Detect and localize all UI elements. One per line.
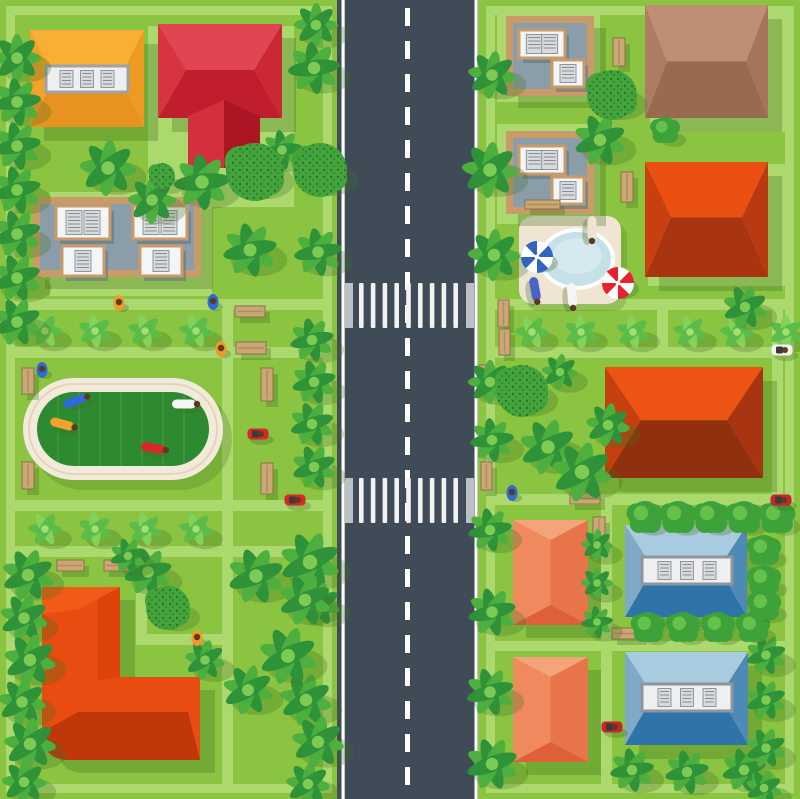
crosswalk-stripe: [394, 283, 399, 328]
crosswalk-stripe: [406, 478, 411, 523]
crosswalk-stripe: [430, 283, 435, 328]
lounger-body: [588, 216, 597, 240]
walk-path: [222, 299, 233, 791]
umbrella-pole-tip: [535, 255, 540, 260]
crosswalk-stripe: [371, 478, 376, 523]
hip-roof-house: [30, 30, 158, 141]
roof-skylight-strip: [642, 557, 732, 584]
crosswalk-stripe: [453, 283, 458, 328]
hip-roof-house: [625, 652, 762, 759]
person-head: [210, 298, 216, 304]
driver-head: [258, 431, 264, 437]
walk-path: [10, 500, 323, 511]
crosswalk-stripe: [359, 283, 364, 328]
crosswalk-stripe: [430, 478, 435, 523]
person-head: [116, 299, 122, 305]
road-edge-line: [475, 0, 478, 799]
roof-facet: [98, 587, 120, 680]
person-head: [39, 366, 45, 372]
skylight-panel: [56, 206, 110, 239]
crosswalk-stripe: [383, 283, 388, 328]
bench: [525, 200, 565, 215]
walk-path: [486, 641, 602, 651]
sunbather-head: [194, 401, 200, 407]
road: [337, 0, 478, 799]
crosswalk-stripe: [394, 478, 399, 523]
hip-roof-house: [645, 162, 782, 291]
driver-head: [781, 497, 787, 503]
crosswalk-stripe: [442, 283, 447, 328]
mower-seat: [775, 497, 782, 504]
person-head: [509, 489, 515, 495]
bench: [235, 306, 270, 323]
stadium: [23, 378, 232, 490]
hip-roof-house: [645, 5, 782, 132]
crosswalk-stripe: [371, 283, 376, 328]
roof-skylight-strip: [46, 66, 128, 92]
crosswalk-stripe: [418, 478, 423, 523]
person-head: [194, 634, 200, 640]
city-map: [0, 0, 800, 799]
person-head: [218, 345, 224, 351]
mower-seat: [776, 347, 783, 354]
gable-roof-house: [513, 657, 601, 775]
umbrella-pole-tip: [616, 281, 621, 286]
mower-seat: [289, 497, 296, 504]
crosswalk-end-bar: [345, 478, 353, 523]
driver-head: [612, 724, 618, 730]
walk-path: [657, 299, 668, 358]
driver-head: [782, 347, 788, 353]
crosswalk-stripe: [442, 478, 447, 523]
sunbather-head: [589, 238, 595, 244]
crosswalk-end-bar: [466, 283, 474, 328]
mower-seat: [252, 431, 259, 438]
crosswalk-end-bar: [345, 283, 353, 328]
crosswalk-stripe: [359, 478, 364, 523]
walk-path: [10, 299, 323, 310]
lounger-body: [172, 400, 196, 409]
crosswalk-stripe: [406, 283, 411, 328]
walk-path: [136, 634, 233, 645]
crosswalk-stripe: [453, 478, 458, 523]
roof-skylight-strip: [642, 684, 732, 711]
driver-head: [295, 497, 301, 503]
crosswalk-stripe: [383, 478, 388, 523]
crosswalk-end-bar: [466, 478, 474, 523]
bench: [236, 342, 271, 360]
mower-seat: [606, 724, 613, 731]
pool-water-highlight: [552, 238, 602, 274]
crosswalk-stripe: [418, 283, 423, 328]
city-map-canvas: [0, 0, 800, 799]
